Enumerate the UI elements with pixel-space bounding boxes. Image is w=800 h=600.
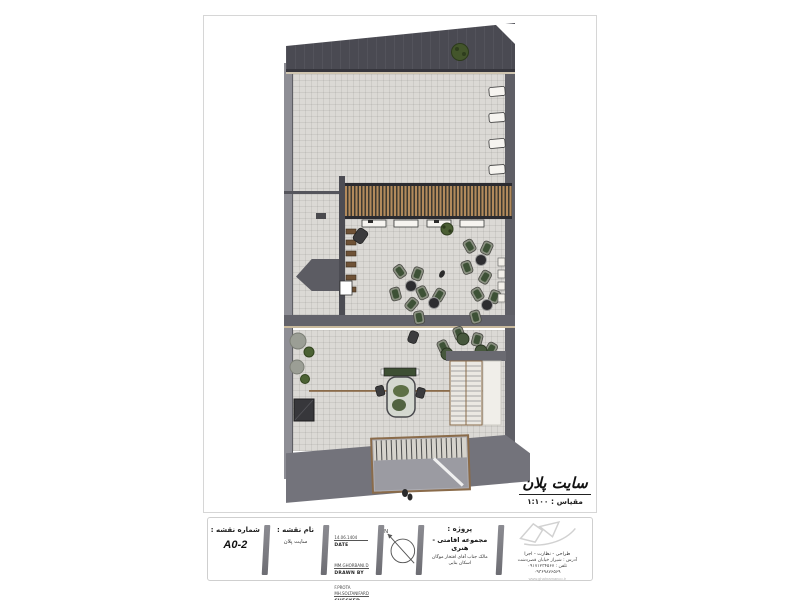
north-arrow-icon: N bbox=[383, 527, 417, 571]
wall-benches bbox=[489, 86, 506, 174]
plan-title-annotation: سایت پلان مقیاس : ۱:۱۰۰ bbox=[517, 474, 593, 506]
info-row-checked: F.PROTA MH.SOLTANIFARD CHECKED bbox=[334, 580, 377, 600]
plan-scale-note: مقیاس : ۱:۱۰۰ bbox=[517, 497, 593, 506]
info-row-drawn-by: MM.GHORBANI.D DRAWN BY bbox=[334, 552, 377, 577]
project-label: پروژه : bbox=[423, 525, 497, 533]
drawing-name-cell: نام نقشه : سایت پلان bbox=[269, 518, 323, 580]
company-address: آدرس : شیراز خیابان قصردشت bbox=[503, 558, 592, 563]
dark-chair bbox=[407, 330, 420, 344]
company-services: طراحی - نظارت - اجرا bbox=[503, 552, 592, 557]
shrubs bbox=[290, 333, 314, 384]
plan-title-calligraphy: سایت پلان bbox=[517, 474, 593, 492]
date-value: 14.06.1404 bbox=[334, 535, 368, 541]
roof-notch bbox=[495, 24, 515, 44]
company-phone-1: تلفن : ۰۹۱۷۱۲۳۴۵۶۷ bbox=[503, 564, 592, 569]
drawn-by-label: DRAWN BY bbox=[334, 571, 377, 577]
potted-plant bbox=[441, 223, 453, 235]
project-cell: پروژه : مجموعه اقامتی - هنری مالک جناب آ… bbox=[423, 518, 497, 580]
table-cluster bbox=[469, 286, 501, 325]
fountain bbox=[375, 368, 426, 417]
company-cell: طراحی - نظارت - اجرا آدرس : شیراز خیابان… bbox=[503, 518, 592, 580]
info-row-date: 14.06.1404 DATE bbox=[334, 524, 377, 549]
right-staircase bbox=[446, 351, 506, 425]
drawing-sheet-page: سایت پلان مقیاس : ۱:۱۰۰ شماره نقشه : A0-… bbox=[0, 0, 800, 600]
yard-bench bbox=[316, 213, 326, 219]
person bbox=[438, 269, 446, 278]
utility-box bbox=[294, 399, 314, 421]
checked-value: F.PROTA MH.SOLTANIFARD bbox=[334, 585, 369, 596]
company-website: www.ghahramanco.ir bbox=[503, 576, 592, 581]
drawing-area-frame: سایت پلان مقیاس : ۱:۱۰۰ bbox=[203, 15, 597, 513]
table-cluster bbox=[460, 238, 494, 285]
project-name: مجموعه اقامتی - هنری bbox=[423, 536, 497, 552]
drawn-by-value: MM.GHORBANI.D bbox=[334, 563, 368, 569]
plan-detail-overlay bbox=[284, 23, 530, 515]
wall-planters bbox=[498, 258, 505, 302]
drawing-info-cell: 14.06.1404 DATE MM.GHORBANI.D DRAWN BY F… bbox=[328, 518, 377, 580]
site-plan-rendering bbox=[284, 23, 530, 515]
company-phone-2: ۰۹۳۶۹۸۷۶۵۶۹ bbox=[503, 570, 592, 575]
title-underline bbox=[519, 494, 591, 495]
white-cabinet bbox=[340, 281, 352, 295]
project-owner: مالک جناب آقای افتخار موگان bbox=[423, 555, 497, 560]
sheet-number-cell: شماره نقشه : A0-2 bbox=[208, 518, 263, 580]
svg-text:N: N bbox=[384, 529, 388, 535]
drawing-name-value: سایت پلان bbox=[269, 539, 323, 545]
tree bbox=[452, 44, 469, 61]
sheet-number-label: شماره نقشه : bbox=[208, 526, 263, 534]
date-label: DATE bbox=[334, 543, 377, 549]
company-logo-icon bbox=[515, 520, 579, 546]
north-arrow-cell: N bbox=[383, 518, 417, 580]
drawing-name-label: نام نقشه : bbox=[269, 526, 323, 534]
project-note: اسکان بنایی bbox=[423, 561, 497, 566]
entry-staircase bbox=[371, 435, 470, 492]
pergola-counters bbox=[362, 220, 484, 227]
sheet-number-value: A0-2 bbox=[208, 539, 263, 551]
title-block: شماره نقشه : A0-2 نام نقشه : سایت پلان 1… bbox=[207, 517, 593, 581]
